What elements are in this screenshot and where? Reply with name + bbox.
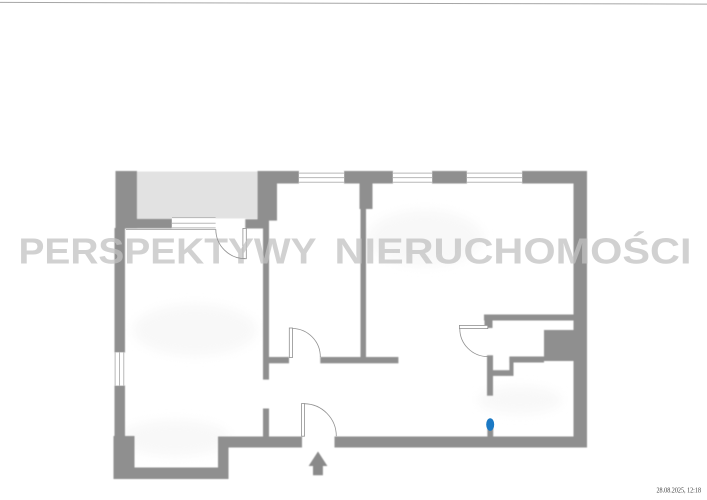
svg-text:PERSPEKTYWY: PERSPEKTYWY bbox=[19, 230, 317, 271]
svg-text:NIERUCHOMOŚCI: NIERUCHOMOŚCI bbox=[335, 229, 692, 271]
svg-text:28.08.2025, 12:18: 28.08.2025, 12:18 bbox=[657, 485, 702, 494]
